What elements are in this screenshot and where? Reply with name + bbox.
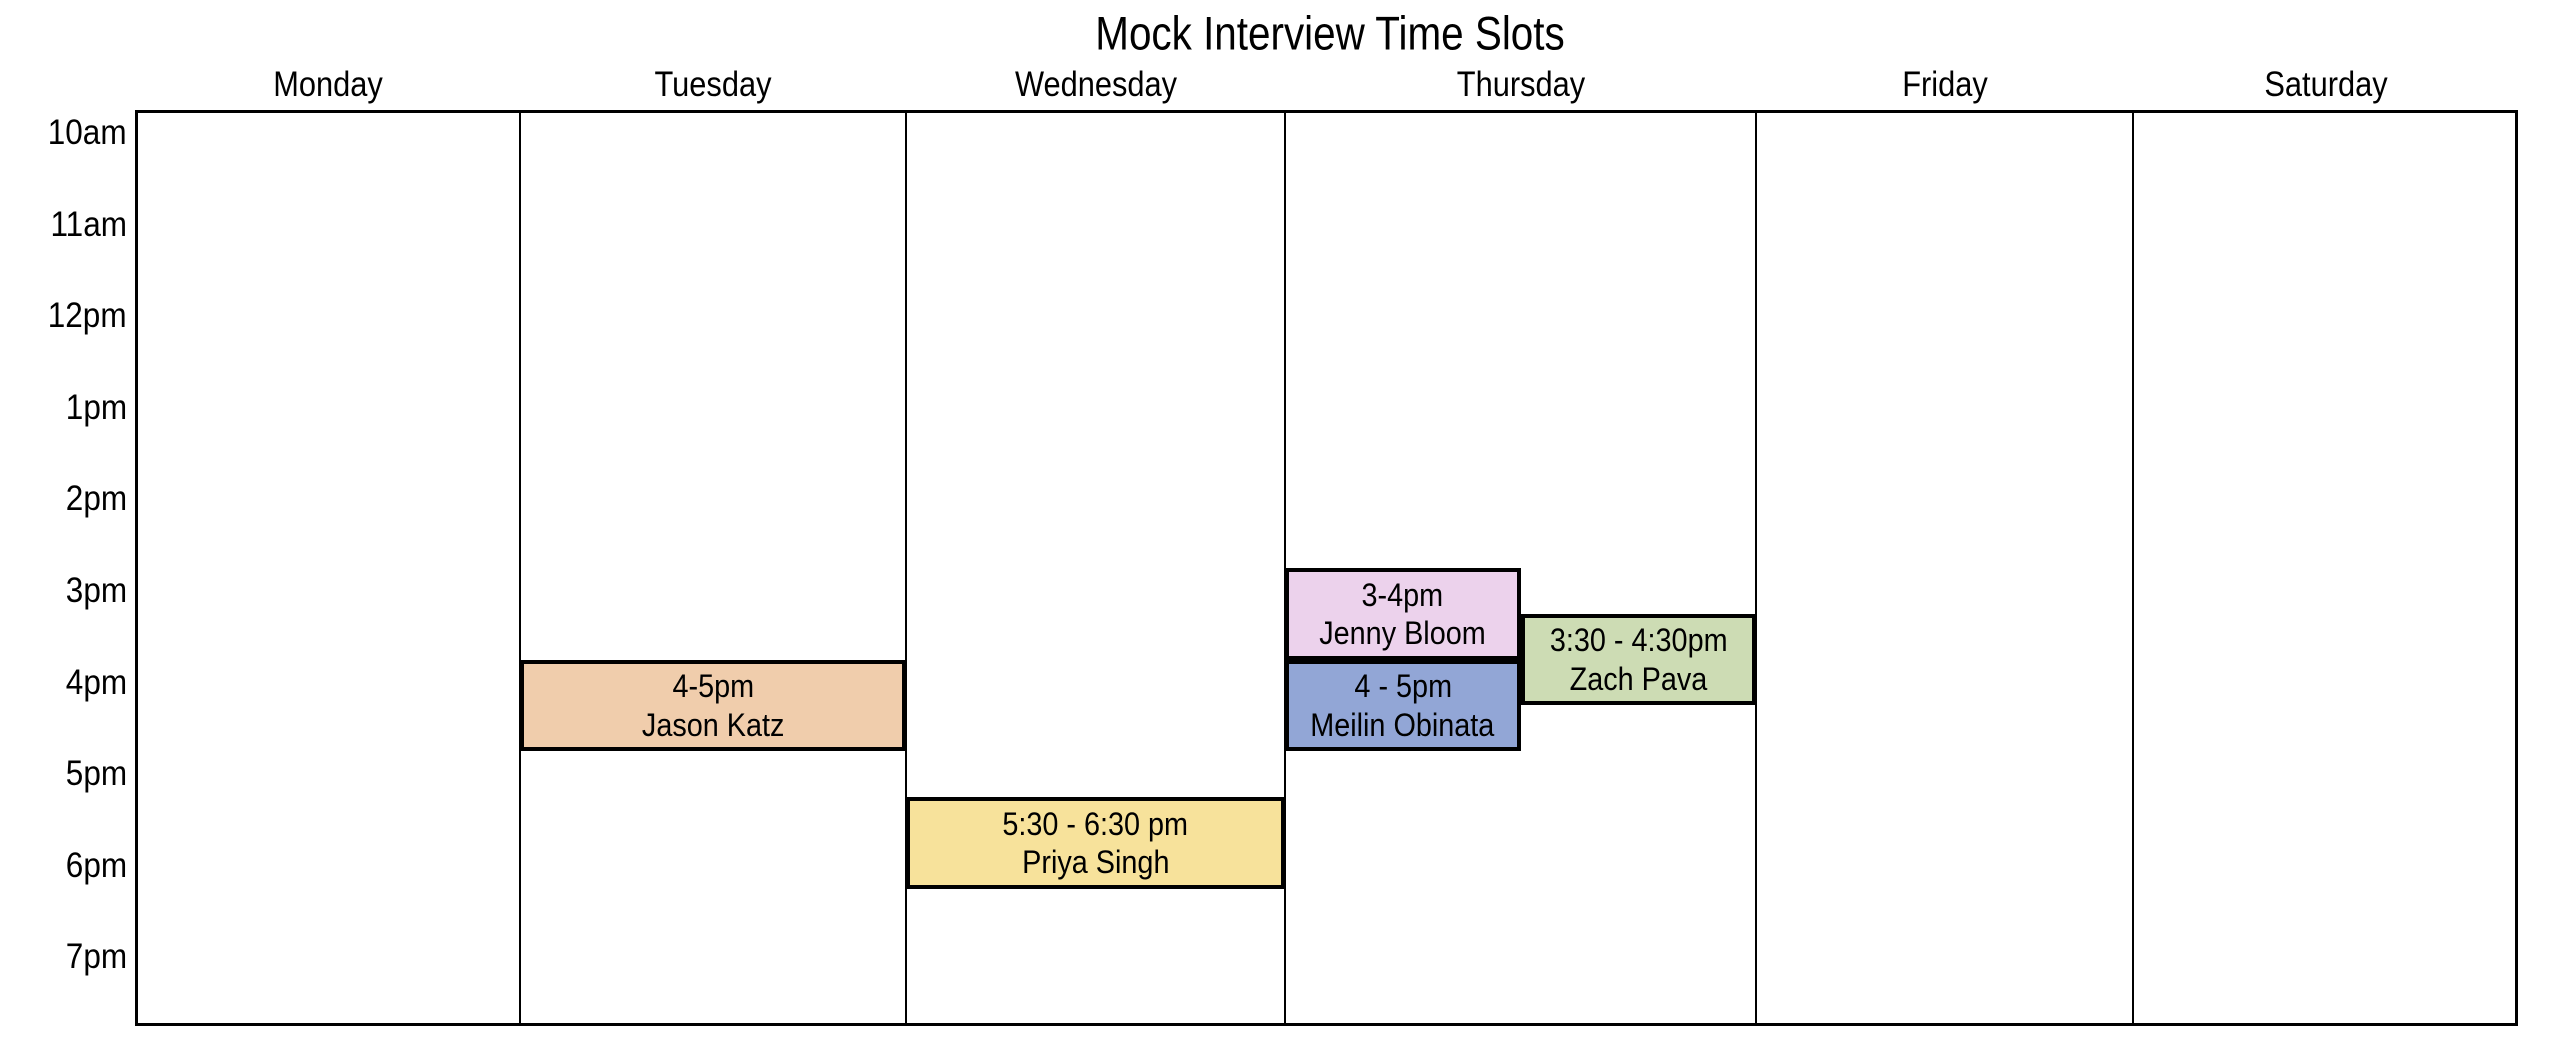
time-label-1pm: 1pm xyxy=(66,388,127,428)
event-person-name: Jason Katz xyxy=(642,709,784,741)
time-label-11am: 11am xyxy=(51,205,127,245)
day-header-wednesday: Wednesday xyxy=(1014,65,1176,105)
event-person-name: Zach Pava xyxy=(1569,663,1707,695)
time-label-7pm: 7pm xyxy=(66,937,127,977)
event-jenny-bloom: 3-4pmJenny Bloom xyxy=(1285,568,1521,660)
time-label-4pm: 4pm xyxy=(66,663,127,703)
event-person-name: Meilin Obinata xyxy=(1311,709,1495,741)
day-header-monday: Monday xyxy=(273,65,383,105)
event-time-label: 5:30 - 6:30 pm xyxy=(1003,808,1189,840)
event-person-name: Priya Singh xyxy=(1022,846,1169,878)
event-person-name: Jenny Bloom xyxy=(1319,617,1485,649)
column-divider xyxy=(1755,110,1758,1026)
time-label-3pm: 3pm xyxy=(66,571,127,611)
event-time-label: 4-5pm xyxy=(672,670,754,702)
event-meilin-obinata: 4 - 5pmMeilin Obinata xyxy=(1285,660,1521,752)
time-label-2pm: 2pm xyxy=(66,479,127,519)
event-time-label: 4 - 5pm xyxy=(1354,670,1452,702)
time-label-12pm: 12pm xyxy=(48,296,127,336)
time-label-5pm: 5pm xyxy=(66,754,127,794)
column-divider xyxy=(2132,110,2135,1026)
event-time-label: 3-4pm xyxy=(1362,579,1444,611)
time-label-6pm: 6pm xyxy=(66,846,127,886)
column-divider xyxy=(905,110,908,1026)
event-zach-pava: 3:30 - 4:30pmZach Pava xyxy=(1521,614,1757,706)
time-label-10am: 10am xyxy=(48,113,127,153)
event-time-label: 3:30 - 4:30pm xyxy=(1549,624,1727,656)
day-header-thursday: Thursday xyxy=(1456,65,1584,105)
day-header-friday: Friday xyxy=(1902,65,1988,105)
chart-title: Mock Interview Time Slots xyxy=(1095,6,1564,61)
event-priya-singh: 5:30 - 6:30 pmPriya Singh xyxy=(906,797,1285,889)
day-header-tuesday: Tuesday xyxy=(655,65,772,105)
column-divider xyxy=(519,110,522,1026)
schedule-chart: Mock Interview Time Slots MondayTuesdayW… xyxy=(0,0,2550,1054)
day-header-saturday: Saturday xyxy=(2264,65,2387,105)
event-jason-katz: 4-5pmJason Katz xyxy=(520,660,906,752)
